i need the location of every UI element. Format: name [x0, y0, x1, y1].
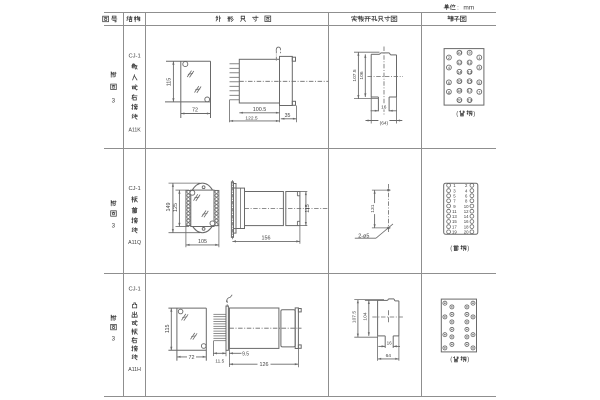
svg-text:3: 3 [112, 335, 116, 342]
svg-text:3: 3 [478, 66, 480, 70]
svg-text:19: 19 [452, 230, 457, 235]
svg-text:156: 156 [262, 236, 271, 242]
svg-text:5: 5 [478, 81, 480, 85]
svg-text:17: 17 [467, 89, 471, 93]
svg-text:A11H: A11H [128, 367, 141, 373]
svg-text:19: 19 [467, 99, 471, 103]
svg-text:64: 64 [386, 353, 392, 359]
svg-text:12: 12 [457, 61, 461, 65]
svg-text:115: 115 [167, 78, 173, 87]
svg-text:106: 106 [359, 71, 365, 79]
svg-text:8: 8 [448, 90, 450, 94]
svg-text:35: 35 [285, 113, 291, 119]
svg-text:(: ( [450, 246, 452, 252]
svg-text:(: ( [456, 111, 458, 117]
svg-text:107.5: 107.5 [352, 311, 358, 324]
svg-text:149: 149 [166, 203, 172, 212]
svg-text:CJ-1: CJ-1 [128, 186, 140, 192]
svg-text:15: 15 [467, 80, 471, 84]
svg-text:104: 104 [363, 312, 369, 320]
svg-text:125: 125 [173, 203, 179, 212]
svg-text:9.5: 9.5 [242, 351, 249, 357]
svg-text:CJ-1: CJ-1 [128, 287, 140, 293]
svg-text:6: 6 [448, 81, 450, 85]
svg-text:115: 115 [165, 325, 171, 334]
svg-text:126: 126 [260, 362, 269, 368]
svg-text:9: 9 [469, 51, 471, 55]
svg-text:11.5: 11.5 [215, 359, 224, 364]
svg-text:1: 1 [478, 56, 480, 60]
svg-text:11: 11 [468, 61, 472, 65]
svg-text:72: 72 [192, 107, 198, 113]
svg-text:(64): (64) [380, 120, 389, 126]
svg-text:(: ( [450, 357, 452, 363]
svg-text:3: 3 [112, 223, 116, 230]
svg-text:13: 13 [467, 70, 471, 74]
svg-text:7: 7 [478, 90, 480, 94]
svg-text:4: 4 [448, 66, 450, 70]
svg-text:107.5: 107.5 [352, 69, 358, 82]
svg-text:14: 14 [457, 70, 461, 74]
svg-text:100.5: 100.5 [253, 107, 267, 113]
svg-text:122.5: 122.5 [245, 116, 258, 122]
svg-text:20: 20 [464, 230, 469, 235]
svg-text:): ) [473, 111, 475, 117]
svg-text:CJ-1: CJ-1 [128, 54, 140, 60]
svg-text:A11Q: A11Q [128, 240, 141, 246]
svg-text:3: 3 [112, 97, 116, 104]
svg-text:2: 2 [448, 56, 450, 60]
svg-text:mm: mm [463, 5, 474, 12]
svg-text:A11K: A11K [128, 128, 141, 134]
svg-text:): ) [467, 246, 469, 252]
svg-text:16: 16 [457, 80, 461, 84]
svg-text:72: 72 [189, 355, 195, 361]
svg-text:20: 20 [457, 99, 461, 103]
svg-text:10: 10 [457, 51, 461, 55]
svg-text:18: 18 [457, 89, 461, 93]
svg-text:16: 16 [387, 341, 393, 346]
svg-text:131: 131 [370, 204, 376, 212]
svg-text:115: 115 [305, 204, 311, 213]
svg-text:): ) [467, 357, 469, 363]
svg-text:16: 16 [381, 105, 387, 111]
svg-text:105: 105 [198, 239, 207, 245]
